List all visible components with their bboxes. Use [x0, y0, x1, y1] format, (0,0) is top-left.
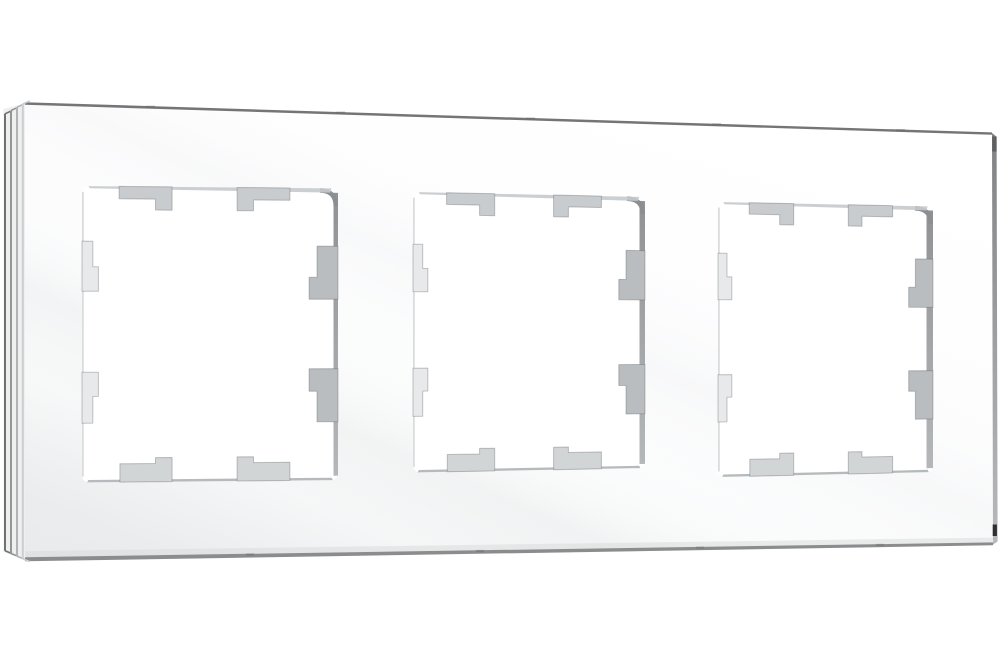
- bottom-edge-nick: [246, 553, 254, 555]
- right-edge-mark-top: [992, 137, 996, 152]
- glass-frame-product-photo: [0, 0, 1000, 667]
- top-edge-nick: [712, 123, 721, 125]
- top-edge-nick: [526, 118, 535, 120]
- bottom-edge-nick: [696, 547, 704, 549]
- product-photo-canvas: [0, 0, 1000, 667]
- module-opening-1: [82, 186, 338, 482]
- inner-wall-left: [718, 208, 720, 472]
- right-edge-mark-bottom: [993, 525, 997, 537]
- frame-left-edge: [4, 104, 26, 561]
- module-opening-3: [718, 202, 933, 477]
- opening-cutout: [413, 192, 645, 472]
- opening-cutout: [82, 186, 338, 482]
- inner-wall-right: [927, 210, 934, 468]
- opening-cutout: [718, 202, 933, 477]
- top-edge-nick: [896, 129, 905, 131]
- inner-wall-left: [413, 198, 415, 467]
- inner-wall-left: [82, 192, 84, 477]
- top-edge-nick: [336, 112, 345, 114]
- bottom-edge-nick: [876, 544, 884, 546]
- top-edge-nick: [146, 106, 155, 108]
- inner-wall-right: [640, 201, 646, 464]
- triple-frame: [4, 101, 998, 562]
- module-opening-2: [413, 192, 645, 472]
- bottom-edge-nick: [476, 550, 484, 552]
- inner-wall-right: [334, 193, 339, 476]
